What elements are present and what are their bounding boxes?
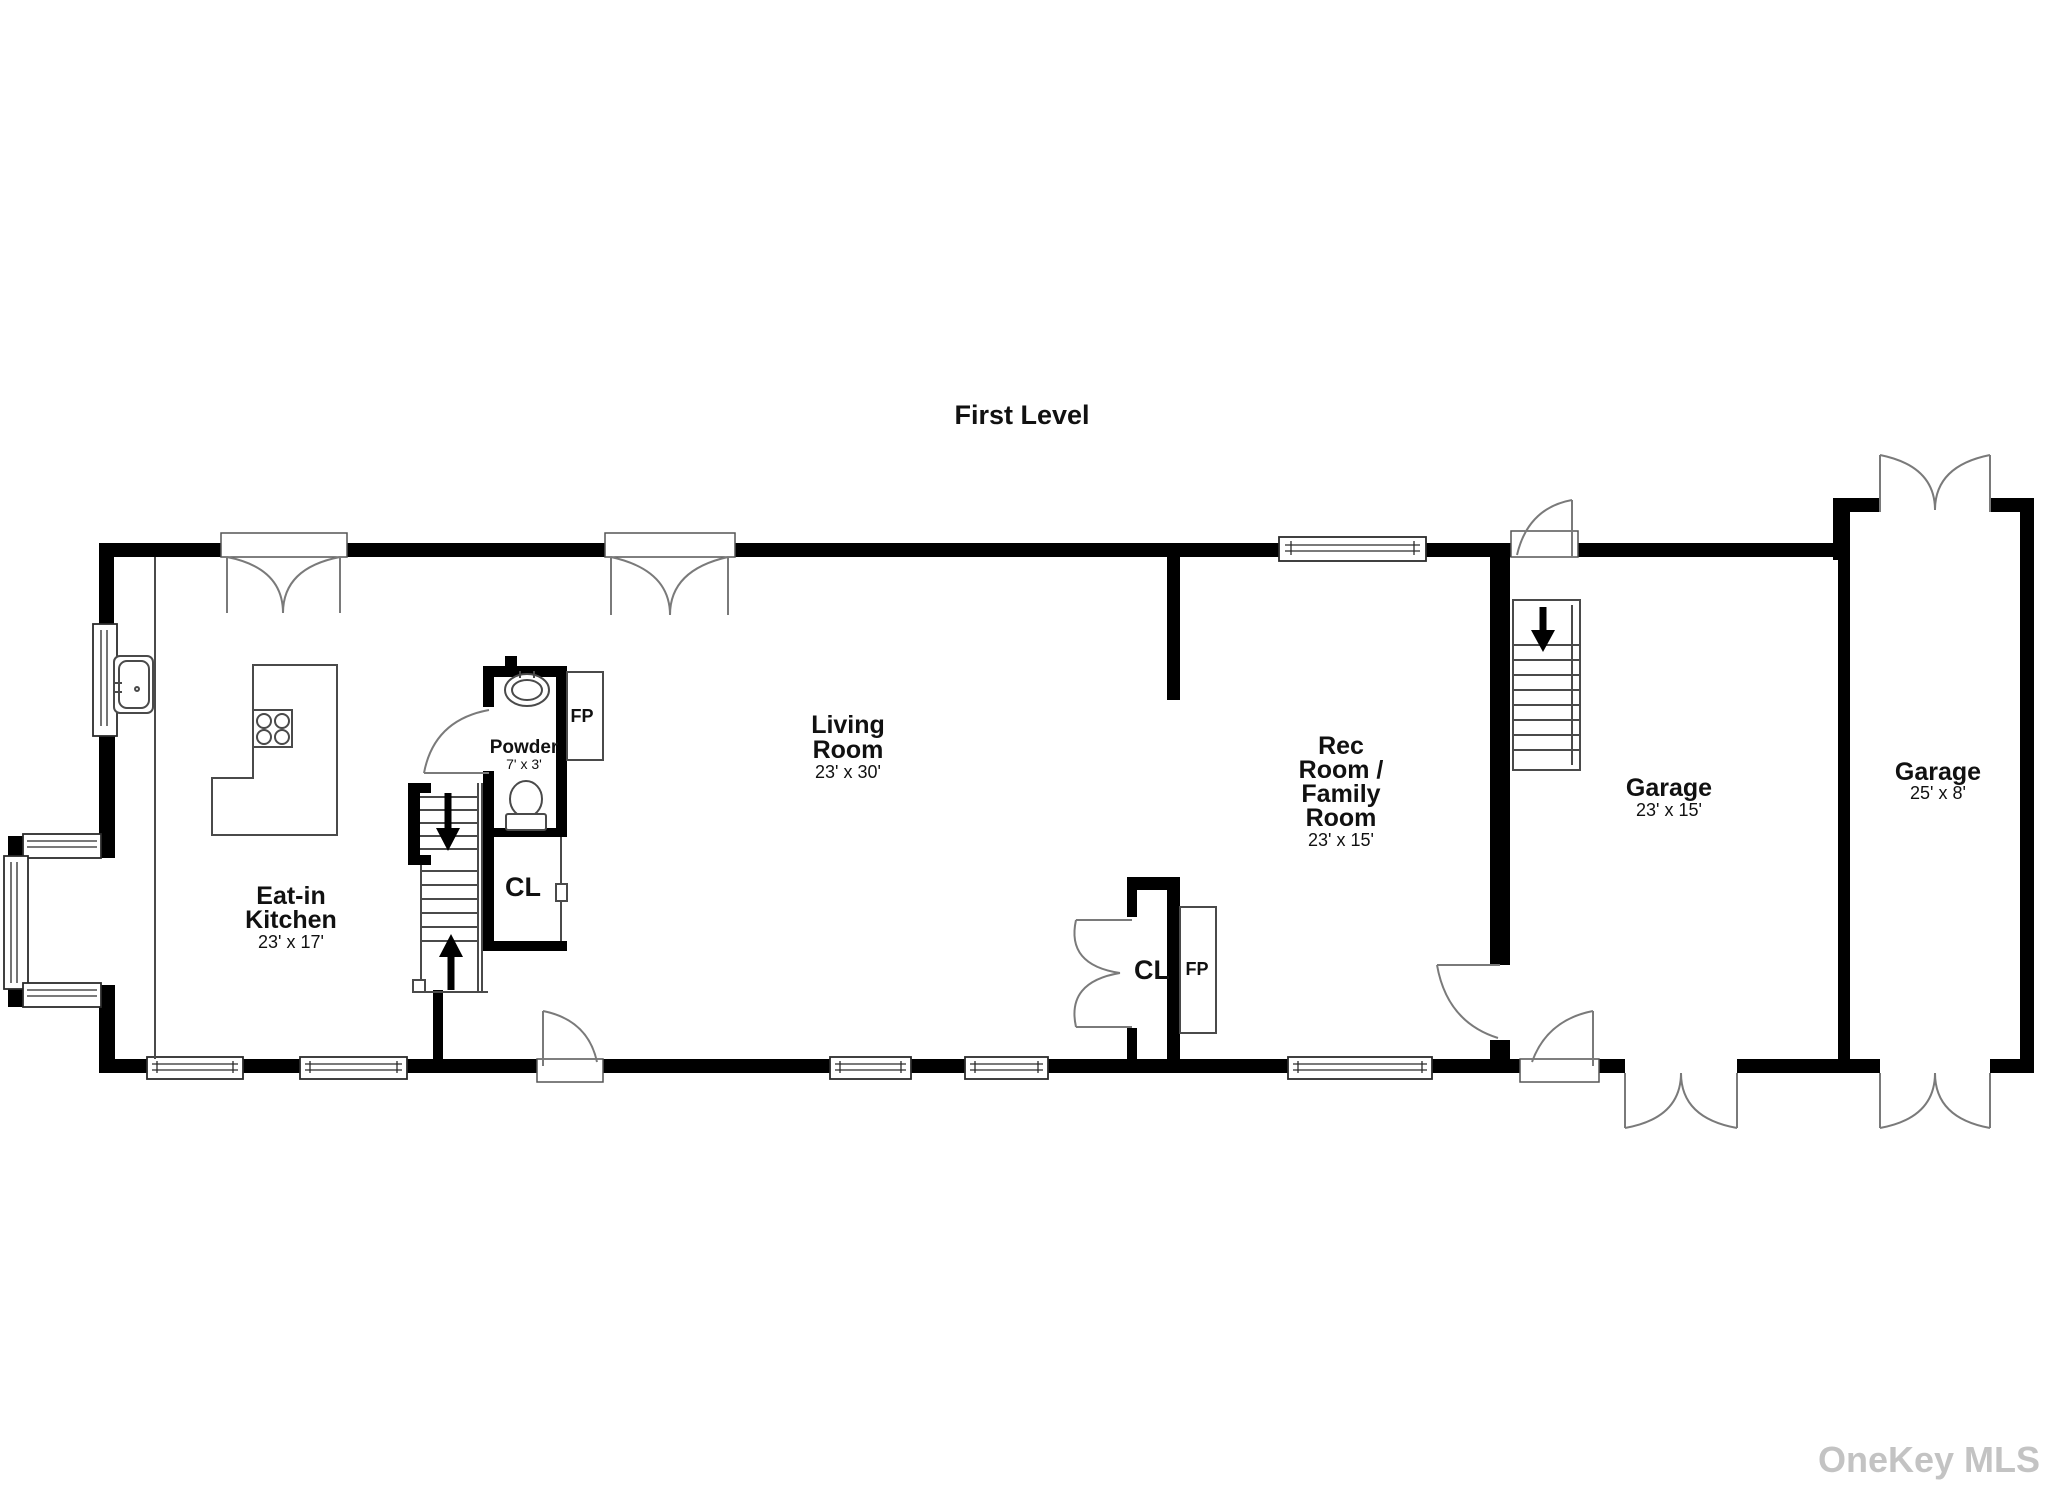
fireplace-label: FP xyxy=(570,706,593,726)
wall-top xyxy=(340,543,611,557)
door-swing-arc xyxy=(227,557,283,613)
garage-door-right-bottom xyxy=(1880,1073,1990,1128)
closet-label: CL xyxy=(1134,955,1170,985)
room-name: Living xyxy=(811,711,885,739)
powder-wall-left xyxy=(483,666,494,707)
door-swing-arc xyxy=(283,557,340,613)
window-frame xyxy=(300,1057,407,1079)
door-swing-arc xyxy=(1880,1073,1935,1128)
toilet-bowl xyxy=(510,781,542,817)
door-garage-bottom xyxy=(1520,1011,1599,1082)
window xyxy=(4,856,28,989)
wall-bottom-garage xyxy=(1737,1059,1880,1073)
stair-newel-post xyxy=(413,980,425,992)
arrow-head xyxy=(439,934,463,957)
garage-door-left-bottom xyxy=(1625,1073,1737,1128)
room-label-garage-right: Garage 25' x 8' xyxy=(1895,758,1981,803)
door-swing-arc xyxy=(611,557,670,615)
wall-bottom xyxy=(906,1059,970,1073)
window xyxy=(23,983,101,1007)
wall-top xyxy=(99,543,227,557)
wall-kitchen-living-stub xyxy=(433,990,443,1059)
door-threshold xyxy=(537,1059,603,1082)
bay-window xyxy=(4,834,101,1007)
door-swing-arc xyxy=(1935,455,1990,510)
wall-bottom xyxy=(602,1059,835,1073)
door-garage-top xyxy=(1511,500,1578,557)
island-outline xyxy=(212,665,337,835)
closet-label: CL xyxy=(505,872,541,902)
wall-bottom xyxy=(1427,1059,1520,1073)
wall-right-garage xyxy=(2020,498,2034,1073)
room-name: Room xyxy=(813,736,884,764)
window xyxy=(1288,1057,1432,1079)
closet-hall xyxy=(556,837,567,941)
closet-rec-jamb xyxy=(1127,890,1137,917)
room-label-garage-left: Garage 23' x 15' xyxy=(1626,774,1712,820)
wall-rec-garage-divider xyxy=(1490,1040,1510,1059)
door-powder xyxy=(424,710,489,773)
wall-top-garage xyxy=(1577,543,1844,557)
door-swing-arc xyxy=(1880,455,1935,510)
arrow-up-icon xyxy=(439,934,463,990)
door-swing-arc xyxy=(424,710,489,773)
window-frame xyxy=(23,983,101,1007)
stair-enclosure-wall xyxy=(408,855,431,865)
wall-top xyxy=(728,543,1285,557)
window xyxy=(147,1057,243,1079)
door-threshold xyxy=(221,533,347,557)
toilet xyxy=(506,781,546,830)
window xyxy=(830,1057,911,1079)
room-label-kitchen: Eat-in Kitchen 23' x 17' xyxy=(245,882,337,952)
door-swing-arc xyxy=(1074,920,1120,973)
stair-enclosure-wall xyxy=(408,783,420,865)
watermark: OneKey MLS xyxy=(1818,1439,2040,1480)
kitchen-fixtures xyxy=(114,557,337,1059)
window-frame xyxy=(147,1057,243,1079)
toilet-tank xyxy=(506,814,546,830)
stairs-garage xyxy=(1513,600,1580,770)
kitchen-island xyxy=(212,665,337,835)
door-swing-arc xyxy=(1532,1011,1593,1062)
room-name: Kitchen xyxy=(245,906,337,934)
powder-wall-nub xyxy=(505,656,517,668)
door-swing-arc xyxy=(1681,1073,1737,1128)
closet-rec-top-wall xyxy=(1127,877,1180,890)
window-frame xyxy=(830,1057,911,1079)
kitchen-sink xyxy=(114,656,153,713)
room-dims: 23' x 30' xyxy=(815,762,881,782)
page-title: First Level xyxy=(954,400,1089,430)
door-rec-garage xyxy=(1437,965,1500,1038)
room-dims: 7' x 3' xyxy=(506,756,542,772)
door-hall-exterior xyxy=(537,1011,603,1082)
wall-bottom-garage-right xyxy=(1990,1059,2034,1073)
room-name: Garage xyxy=(1626,774,1712,802)
wall-bottom xyxy=(238,1059,305,1073)
stair-enclosure-wall xyxy=(408,783,431,793)
room-dims: 23' x 17' xyxy=(258,932,324,952)
closet-rec-jamb xyxy=(1127,1028,1137,1059)
wall-living-rec-divider xyxy=(1167,557,1180,700)
arrow-head xyxy=(436,828,460,851)
door-swing-arc xyxy=(1437,965,1498,1038)
room-name: Garage xyxy=(1895,758,1981,786)
wall-garage-divider xyxy=(1838,557,1850,1059)
door-threshold xyxy=(605,533,735,557)
wall-left xyxy=(99,543,114,628)
door-swing-arc xyxy=(543,1011,597,1062)
room-label-powder: Powder 7' x 3' xyxy=(490,737,559,772)
window xyxy=(1279,537,1426,561)
window-frame xyxy=(4,856,28,989)
closet-hall-wall-left xyxy=(483,837,494,951)
window xyxy=(965,1057,1048,1079)
window-frame xyxy=(1288,1057,1432,1079)
door-swing-arc xyxy=(1074,973,1120,1027)
double-door-closet-rec xyxy=(1074,920,1132,1027)
room-dims: 23' x 15' xyxy=(1308,830,1374,850)
double-door-kitchen xyxy=(221,533,347,613)
window xyxy=(23,834,101,858)
door-swing-arc xyxy=(1625,1073,1681,1128)
double-door-living xyxy=(605,533,735,615)
door-threshold xyxy=(1520,1059,1599,1082)
window-frame xyxy=(1279,537,1426,561)
wall-bottom xyxy=(402,1059,538,1073)
window-frame xyxy=(23,834,101,858)
garage-door-right-top xyxy=(1880,455,1990,512)
window xyxy=(300,1057,407,1079)
fireplaces xyxy=(567,672,1216,1033)
room-label-rec: Rec Room / Family Room 23' x 15' xyxy=(1299,732,1384,850)
room-label-living: Living Room 23' x 30' xyxy=(811,711,885,782)
door-swing-arc xyxy=(1935,1073,1990,1128)
wall-garage-divider xyxy=(1833,498,1850,560)
door-swing-arc xyxy=(670,557,728,615)
floor-plan-drawing: First Level Eat-in Kitchen 23' x 17' Liv… xyxy=(0,0,2048,1489)
room-dims: 25' x 8' xyxy=(1910,783,1966,803)
fireplace-label: FP xyxy=(1185,959,1208,979)
window-frame xyxy=(965,1057,1048,1079)
powder-wall-left xyxy=(483,771,494,837)
wall-bottom xyxy=(99,1059,152,1073)
room-dims: 23' x 15' xyxy=(1636,800,1702,820)
closet-door-panel xyxy=(556,884,567,901)
wall-bottom xyxy=(1043,1059,1293,1073)
wall-bottom-garage xyxy=(1599,1059,1625,1073)
closet-hall-wall-bottom xyxy=(483,941,567,951)
stairs-main xyxy=(413,783,488,992)
room-name: Room xyxy=(1306,804,1377,832)
floor-plan-page: First Level Eat-in Kitchen 23' x 17' Liv… xyxy=(0,0,2048,1489)
room-name: Powder xyxy=(490,737,559,758)
wall-rec-garage-divider xyxy=(1490,543,1510,965)
